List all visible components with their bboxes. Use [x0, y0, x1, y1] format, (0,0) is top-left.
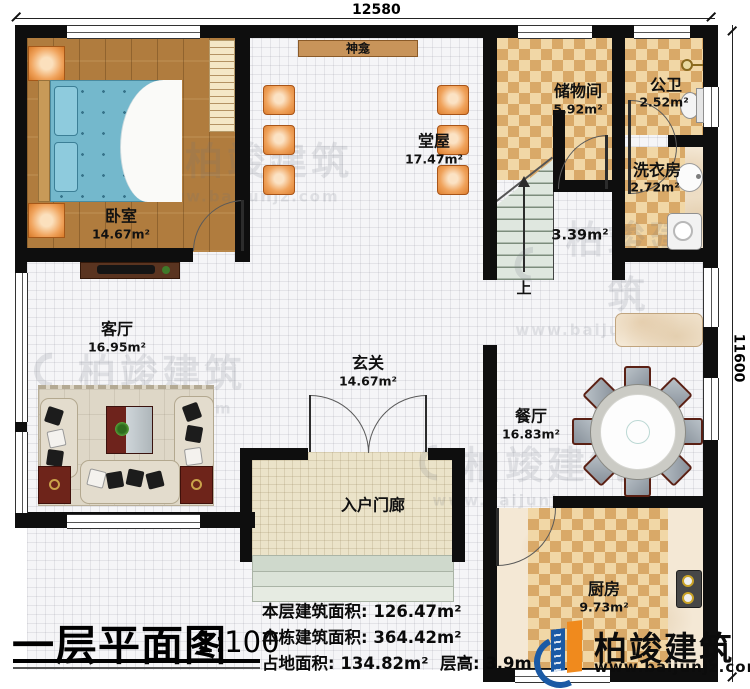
cushion	[185, 425, 204, 444]
room-label-kitchen: 厨房	[588, 582, 620, 599]
wall	[483, 25, 497, 110]
chair	[437, 165, 469, 195]
wall	[612, 248, 718, 262]
burner	[682, 592, 694, 604]
brand-logo-icon	[534, 620, 590, 678]
cushion	[106, 471, 125, 490]
wall	[612, 135, 625, 248]
nightstand	[28, 203, 65, 238]
chair	[263, 85, 295, 115]
room-area-bath: 2.52m²	[639, 95, 688, 108]
room-area-foyer: 14.67m²	[339, 374, 397, 387]
wardrobe	[209, 40, 235, 132]
window	[15, 432, 28, 513]
floor-plan-canvas: 柏竣建筑 www.baijunjz.com 柏竣建筑 www.baijunjz.…	[0, 0, 750, 689]
stats-value: 134.82m²	[340, 654, 428, 673]
room-label-porch: 入户门廊	[341, 498, 405, 515]
stats-label: 占地面积:	[262, 654, 335, 673]
room-area-storage: 5.92m²	[553, 102, 602, 115]
pillow	[54, 142, 78, 192]
dimension-line-top	[15, 18, 715, 19]
kitchen-door	[496, 508, 499, 566]
burner	[682, 575, 694, 587]
room-label-shrine: 神龛	[346, 43, 370, 56]
stats-label: 本层建筑面积:	[262, 602, 368, 621]
dimension-top: 12580	[352, 2, 401, 18]
stats-value: 126.47m²	[373, 602, 461, 621]
dimension-tick	[11, 12, 21, 22]
entry-door-left	[309, 395, 312, 452]
plan-title: 一层平面图	[12, 612, 227, 673]
wall	[553, 496, 703, 508]
tv	[97, 265, 155, 274]
chair	[437, 85, 469, 115]
window	[67, 514, 200, 529]
stats-label: 层高:	[440, 654, 480, 673]
dimension-right: 11600	[730, 334, 746, 383]
cushion	[126, 469, 145, 488]
stats-line: 占地面积: 134.82m² 层高: 3.9m	[262, 651, 532, 677]
bedroom-door	[241, 200, 244, 251]
stats-line: 本栋建筑面积: 364.42m²	[262, 625, 532, 651]
room-label-dining: 餐厅	[515, 409, 547, 426]
room-area-stairwell: 3.39m²	[551, 228, 608, 243]
wall	[483, 345, 497, 448]
chair	[263, 125, 295, 155]
window	[67, 25, 200, 39]
stats-label: 本栋建筑面积:	[262, 628, 368, 647]
stair-up-arrow-icon	[518, 176, 530, 187]
window	[15, 273, 28, 422]
cushion	[184, 447, 203, 466]
title-rule	[13, 659, 260, 663]
room-label-living: 客厅	[101, 322, 133, 339]
plant	[115, 422, 129, 436]
faucet	[696, 174, 701, 179]
wall	[612, 248, 625, 280]
window	[634, 25, 690, 39]
pillow	[54, 86, 78, 136]
room-area-living: 16.95m²	[88, 340, 146, 353]
title-rule	[13, 667, 260, 669]
end-table-lamp	[49, 479, 60, 490]
dimension-tick	[706, 12, 716, 22]
room-label-hall: 堂屋	[418, 134, 450, 151]
stats-value: 3.9m	[485, 654, 531, 673]
room-area-dining: 16.83m²	[502, 427, 560, 440]
room-area-bedroom: 14.67m²	[92, 227, 150, 240]
brand-logo-tower-blue	[551, 628, 565, 672]
room-label-foyer: 玄关	[352, 356, 384, 373]
room-label-storage: 储物间	[554, 84, 602, 101]
wall	[252, 448, 308, 460]
window	[703, 268, 719, 327]
sideboard	[615, 313, 703, 347]
wall	[452, 448, 465, 562]
room-label-bedroom: 卧室	[105, 209, 137, 226]
end-table-lamp	[191, 479, 202, 490]
window	[518, 25, 592, 39]
wall	[15, 248, 193, 262]
wall	[612, 25, 625, 135]
lazy-susan	[626, 420, 650, 444]
wall	[240, 448, 252, 562]
stats-value: 364.42m²	[373, 628, 461, 647]
stats-line: 本层建筑面积: 126.47m²	[262, 599, 532, 625]
stair-direction-line	[523, 186, 525, 272]
bed-headboard	[38, 80, 50, 202]
shower-arm	[692, 64, 703, 66]
area-stats: 本层建筑面积: 126.47m² 本栋建筑面积: 364.42m² 占地面积: …	[262, 599, 532, 677]
toilet-tank	[696, 88, 704, 123]
storage-door	[605, 135, 608, 189]
coffee-table	[106, 406, 153, 454]
brand-logo-tower-orange	[567, 620, 582, 673]
brand-url: www.baijunjz.com	[594, 658, 750, 676]
nightstand	[28, 46, 65, 81]
washer-drum	[673, 221, 693, 241]
cushion	[46, 449, 64, 467]
room-label-laundry: 洗衣房	[633, 163, 681, 180]
plant	[162, 266, 170, 274]
wall	[428, 448, 452, 460]
stair-up-label: 上	[516, 281, 531, 297]
cushion	[46, 428, 66, 448]
chair	[263, 165, 295, 195]
entry-door-right	[425, 395, 428, 452]
window	[703, 378, 719, 440]
window	[703, 87, 719, 127]
wall	[483, 110, 497, 280]
room-label-bath: 公卫	[650, 78, 682, 95]
room-area-hall: 17.47m²	[405, 152, 463, 165]
room-area-laundry: 2.72m²	[630, 180, 679, 193]
bath-door	[628, 100, 631, 148]
room-area-kitchen: 9.73m²	[579, 600, 628, 613]
